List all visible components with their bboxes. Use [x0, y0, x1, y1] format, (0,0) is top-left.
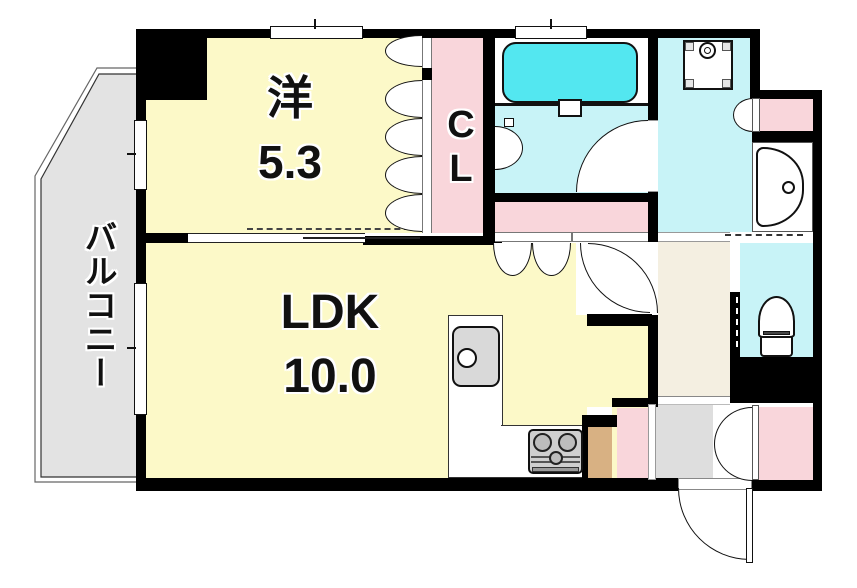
western-room-size: 5.3	[235, 138, 345, 186]
wall	[752, 480, 822, 491]
entry-closet-track	[752, 405, 759, 480]
bath-faucet	[504, 118, 514, 127]
washing-machine-corner	[722, 42, 731, 51]
wall	[813, 90, 822, 490]
wall	[136, 478, 678, 491]
washing-machine-faucet-inner	[704, 47, 711, 54]
washing-machine-corner	[685, 79, 694, 88]
entrance-floor	[656, 404, 713, 480]
window-balcony-upper	[134, 120, 147, 190]
closet-label: CL	[436, 88, 480, 208]
window-tick	[127, 153, 136, 155]
linen-closet	[760, 99, 813, 131]
bath-doorway	[648, 120, 658, 192]
washbasin-drain	[782, 181, 795, 194]
washing-machine-corner	[685, 42, 694, 51]
washroom-dashed-boundary	[725, 234, 803, 236]
inner-corridor-strip	[493, 202, 648, 232]
wall	[483, 37, 495, 245]
hallway	[658, 242, 730, 398]
pillar-bottom-right	[730, 357, 815, 403]
toilet-seat-line	[763, 331, 790, 335]
stove-burner	[533, 433, 552, 452]
entry-closet-right	[759, 407, 813, 480]
ldk-size: 10.0	[225, 352, 435, 402]
shoe-cabinet	[587, 427, 612, 478]
sliding-door-panel-line	[303, 237, 420, 239]
stove-burner	[558, 433, 577, 452]
sink-faucet	[457, 348, 477, 368]
window-tick	[314, 19, 316, 29]
front-door-arc	[678, 488, 750, 560]
window-tick	[127, 347, 136, 349]
stove-burner-small	[549, 451, 563, 465]
stove-tray	[532, 467, 579, 472]
wall	[750, 29, 760, 99]
closet-track-divider	[422, 68, 432, 80]
window-balcony-lower	[134, 283, 147, 415]
ldk-label: LDK	[225, 288, 435, 338]
bathtub	[502, 42, 638, 103]
window-western-top	[270, 26, 363, 39]
washroom-hall-doorway	[658, 232, 730, 242]
toilet-doorway	[730, 243, 740, 292]
wall	[752, 90, 822, 99]
sliding-door-dashed-track	[247, 228, 420, 230]
wall	[648, 315, 658, 403]
outside-corner	[752, 29, 857, 91]
entry-closet-door-strip	[648, 404, 656, 480]
balcony-label: バルコニー	[71, 197, 115, 412]
wall	[752, 131, 813, 142]
window-tick	[550, 19, 552, 29]
track-divider-tick	[571, 232, 573, 242]
bifold-track	[752, 98, 760, 132]
wall	[483, 193, 658, 202]
wall	[136, 29, 760, 38]
wall	[587, 314, 652, 326]
western-room-label: 洋	[250, 74, 330, 122]
closet-door-track	[422, 35, 432, 233]
hallway-entrance-step	[658, 396, 730, 405]
washing-machine-corner	[722, 79, 731, 88]
corner-pillar	[136, 29, 207, 100]
floor-plan: 洋 5.3 LDK 10.0 CL バルコニー	[0, 0, 857, 588]
bathtub-step-notch	[558, 99, 582, 117]
entry-closet-left	[617, 408, 648, 478]
front-door-panel	[746, 488, 753, 563]
toilet-door-dashed	[736, 297, 740, 347]
wall	[140, 233, 188, 243]
